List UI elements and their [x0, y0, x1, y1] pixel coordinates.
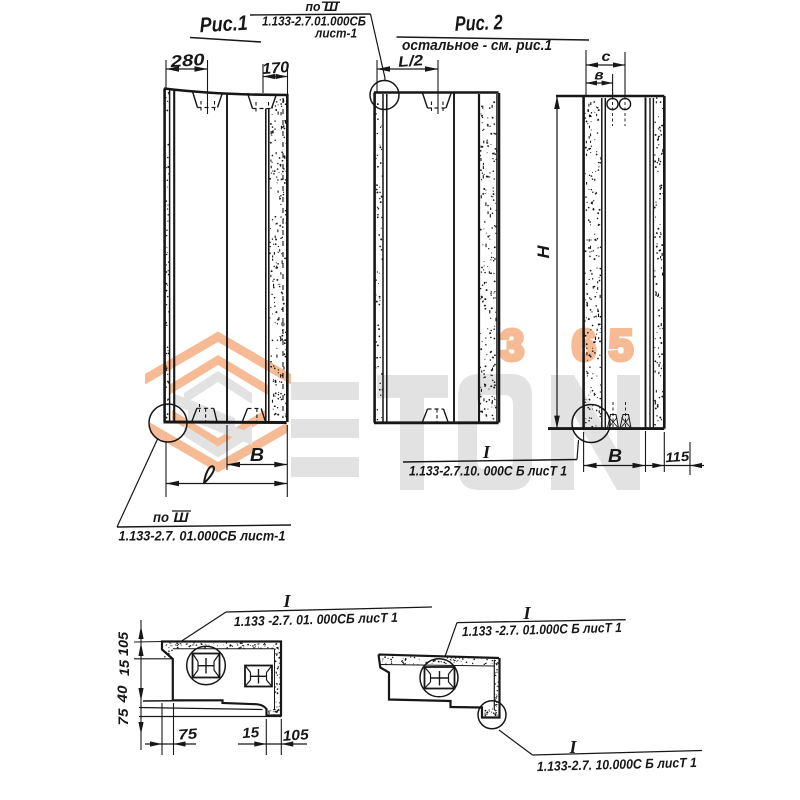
svg-text:остальное - см. рис.1: остальное - см. рис.1 [402, 38, 552, 54]
svg-text:3: 3 [500, 321, 524, 370]
svg-text:5: 5 [609, 321, 633, 370]
svg-text:лист-1: лист-1 [314, 26, 357, 41]
svg-text:1.133-2.7.10. 000С Б лисТ 1: 1.133-2.7.10. 000С Б лисТ 1 [409, 464, 567, 479]
svg-text:105: 105 [282, 727, 310, 745]
svg-text:115: 115 [665, 449, 691, 466]
svg-text:в: в [595, 68, 604, 83]
svg-text:Рис. 2: Рис. 2 [454, 11, 503, 36]
svg-text:по: по [306, 0, 321, 14]
svg-text:с: с [602, 49, 612, 64]
svg-text:15: 15 [242, 725, 261, 742]
svg-text:I: I [522, 603, 531, 623]
svg-text:I: I [482, 442, 491, 462]
svg-text:75: 75 [178, 726, 199, 743]
svg-text:Рис.1: Рис.1 [199, 12, 248, 37]
svg-text:280: 280 [169, 51, 206, 71]
svg-text:I: I [568, 737, 577, 757]
svg-text:75: 75 [116, 708, 131, 726]
svg-text:В: В [608, 446, 622, 466]
svg-text:по: по [153, 509, 169, 525]
svg-text:170: 170 [262, 59, 291, 78]
svg-text:105: 105 [116, 631, 131, 656]
svg-text:L/2: L/2 [398, 52, 425, 71]
svg-text:Н: Н [534, 245, 553, 259]
svg-text:1.133-2.7. 01.000СБ лист-1: 1.133-2.7. 01.000СБ лист-1 [119, 529, 286, 544]
svg-text:В: В [250, 445, 264, 465]
svg-text:I: I [282, 591, 291, 611]
svg-text:40: 40 [115, 685, 130, 704]
svg-text:15: 15 [117, 659, 132, 676]
